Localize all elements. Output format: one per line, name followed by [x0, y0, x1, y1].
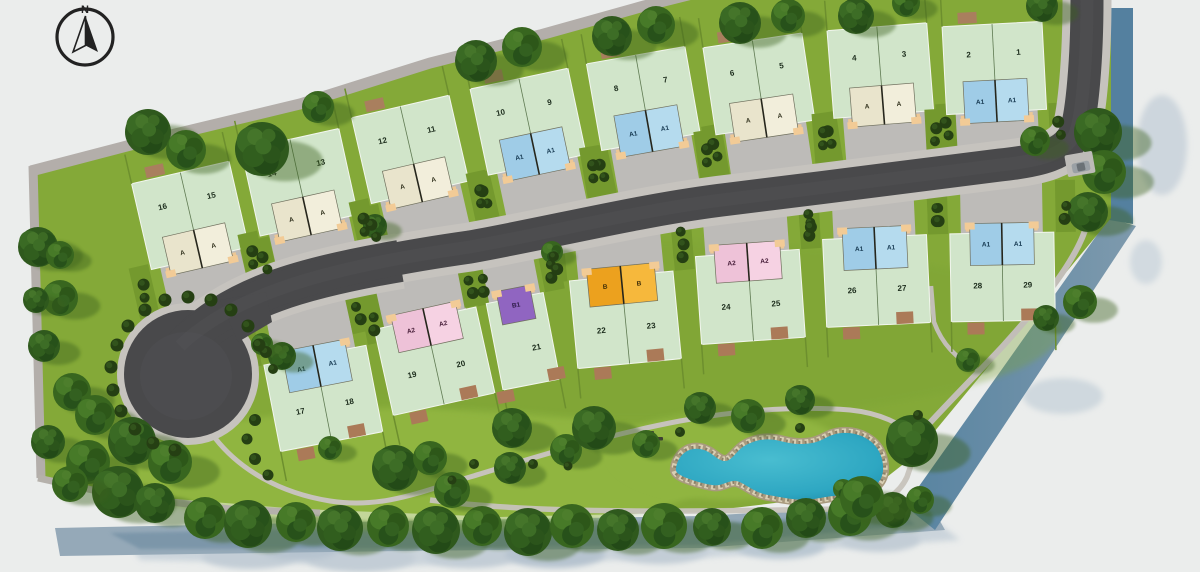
svg-text:A1: A1: [660, 125, 670, 133]
svg-text:N: N: [81, 4, 89, 16]
svg-text:27: 27: [897, 284, 907, 293]
svg-text:A1: A1: [855, 246, 864, 253]
svg-text:A1: A1: [887, 244, 896, 251]
svg-text:A1: A1: [1014, 241, 1023, 248]
svg-text:23: 23: [646, 321, 656, 331]
svg-text:A1: A1: [629, 130, 639, 138]
svg-text:24: 24: [721, 302, 731, 312]
svg-text:A1: A1: [976, 99, 985, 106]
svg-text:26: 26: [847, 286, 857, 295]
svg-text:A2: A2: [727, 260, 736, 268]
svg-text:25: 25: [771, 299, 781, 309]
svg-text:29: 29: [1023, 280, 1033, 289]
svg-text:A1: A1: [982, 241, 991, 248]
svg-text:A2: A2: [760, 258, 769, 266]
svg-text:A: A: [896, 101, 902, 108]
svg-text:A1: A1: [1008, 97, 1017, 104]
svg-text:28: 28: [973, 281, 983, 290]
svg-text:22: 22: [596, 326, 606, 336]
svg-text:A: A: [864, 103, 870, 110]
